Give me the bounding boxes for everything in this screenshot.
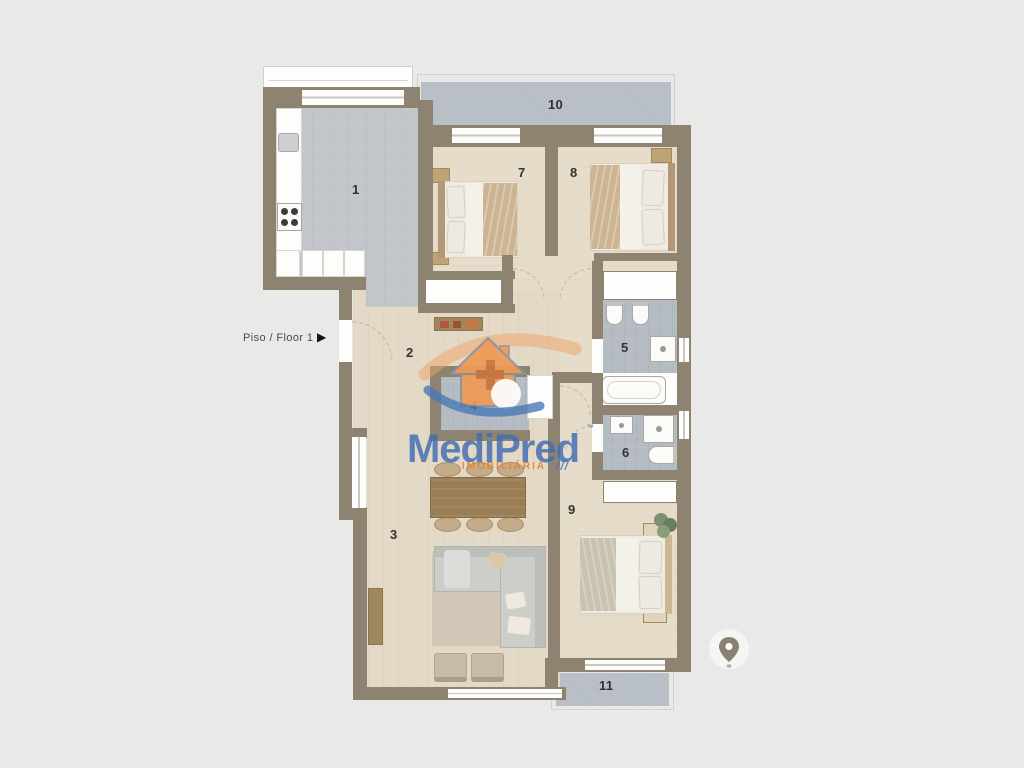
floor-next-arrow-icon[interactable]: ▶ [317,330,326,344]
logo-white-circle [491,379,521,409]
watermark-tagline: IMOBILIÁRIA [452,461,556,472]
room-label-living: 3 [390,527,398,542]
location-pin-icon[interactable] [706,624,754,674]
watermark-trademark: ™ [586,423,594,432]
floor-selector[interactable]: Piso / Floor 1 ▶ [243,329,333,347]
room-label-balcony-10: 10 [548,97,563,112]
medipred-logo-graphic [400,318,600,430]
room-label-bath-5: 5 [621,340,629,355]
room-label-bedroom-8: 8 [570,165,578,180]
room-label-balcony-11: 11 [599,678,613,693]
floor-selector-label: Piso / Floor 1 [243,332,313,344]
room-label-bedroom-7: 7 [518,165,526,180]
room-label-bedroom-9: 9 [568,502,576,517]
room-label-bath-6: 6 [622,445,630,460]
watermark-slashes-icon: /// [556,459,569,473]
floor-plan-image: 1 2 3 4 5 6 7 8 9 10 11 Piso / Floor 1 ▶… [0,0,1024,768]
room-label-kitchen: 1 [352,182,360,197]
